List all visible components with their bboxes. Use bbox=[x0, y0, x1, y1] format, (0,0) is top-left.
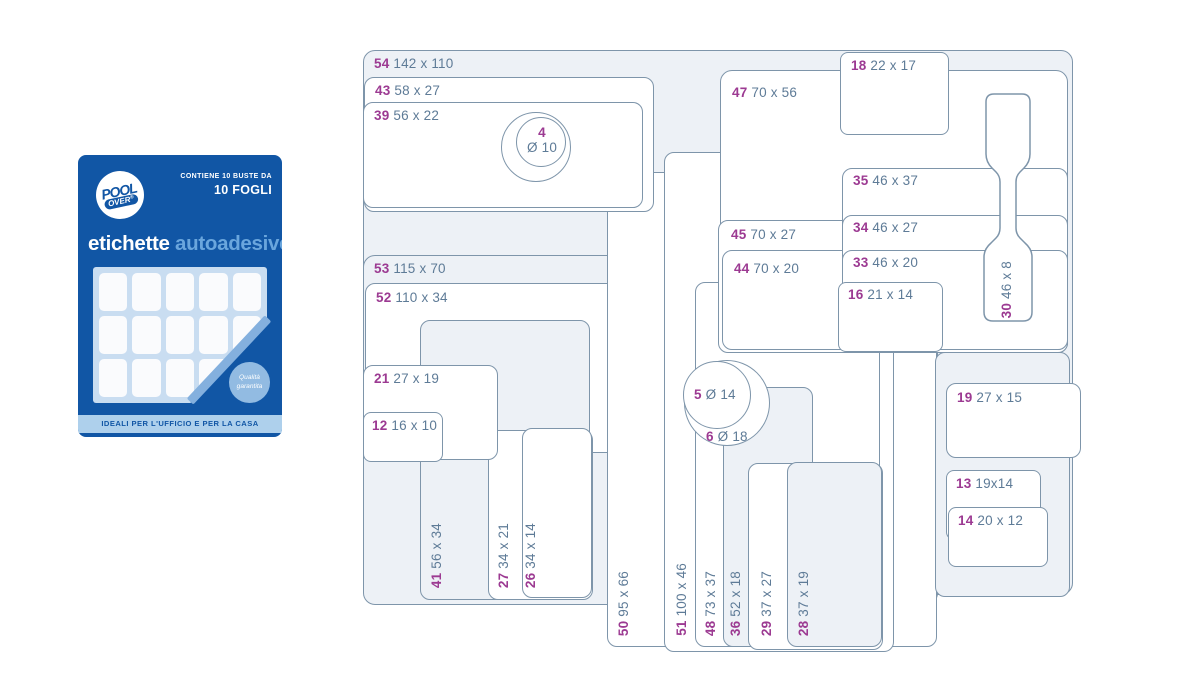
label-47-number: 47 bbox=[732, 85, 747, 100]
label-30-dimensions: 46 x 8 bbox=[999, 261, 1014, 299]
label-26-dimensions: 34 x 14 bbox=[523, 523, 538, 569]
label-30-label: 30 46 x 8 bbox=[1000, 261, 1015, 318]
label-41-label: 41 56 x 34 bbox=[430, 523, 445, 588]
label-36-number: 36 bbox=[728, 621, 743, 636]
label-16-dimensions: 21 x 14 bbox=[867, 287, 913, 302]
label-43-label: 43 58 x 27 bbox=[375, 84, 440, 99]
label-18-number: 18 bbox=[851, 58, 866, 73]
label-13-dimensions: 19x14 bbox=[975, 476, 1013, 491]
label-44-number: 44 bbox=[734, 261, 749, 276]
label-51-dimensions: 100 x 46 bbox=[674, 563, 689, 616]
label-35-dimensions: 46 x 37 bbox=[872, 173, 918, 188]
label-18-dimensions: 22 x 17 bbox=[870, 58, 916, 73]
label-41-dimensions: 56 x 34 bbox=[429, 523, 444, 569]
label-14-number: 14 bbox=[958, 513, 973, 528]
label-48-label: 48 73 x 37 bbox=[704, 571, 719, 636]
label-47-dimensions: 70 x 56 bbox=[751, 85, 797, 100]
label-26-number: 26 bbox=[523, 573, 538, 588]
label-28-number: 28 bbox=[796, 621, 811, 636]
label-36-dimensions: 52 x 18 bbox=[728, 571, 743, 617]
label-35-label: 35 46 x 37 bbox=[853, 174, 918, 189]
label-44-dimensions: 70 x 20 bbox=[753, 261, 799, 276]
label-52-dimensions: 110 x 34 bbox=[395, 290, 447, 305]
label-size-diagram: 54 142 x 11053 115 x 7052 110 x 3450 95 … bbox=[0, 0, 1200, 700]
label-43-dimensions: 58 x 27 bbox=[394, 83, 440, 98]
label-39-label: 39 56 x 22 bbox=[374, 109, 439, 124]
label-19-number: 19 bbox=[957, 390, 972, 405]
label-4-label: 4Ø 10 bbox=[527, 126, 557, 156]
label-51-number: 51 bbox=[674, 621, 689, 636]
circle-6-label: 6 Ø 18 bbox=[706, 430, 748, 445]
label-27-number: 27 bbox=[496, 573, 511, 588]
page: POOL OVER® CONTIENE 10 BUSTE DA 10 FOGLI… bbox=[0, 0, 1200, 700]
label-52-number: 52 bbox=[376, 290, 391, 305]
label-47-label: 47 70 x 56 bbox=[732, 86, 797, 101]
label-39-number: 39 bbox=[374, 108, 389, 123]
label-53-number: 53 bbox=[374, 261, 389, 276]
label-27-label: 27 34 x 21 bbox=[497, 523, 512, 588]
label-13-label: 13 19x14 bbox=[956, 477, 1013, 492]
circle-5-number: 5 bbox=[694, 387, 702, 402]
label-50-dimensions: 95 x 66 bbox=[616, 571, 631, 617]
label-54-label: 54 142 x 110 bbox=[374, 57, 453, 72]
label-34-label: 34 46 x 27 bbox=[853, 221, 918, 236]
label-28-label: 28 37 x 19 bbox=[797, 571, 812, 636]
label-54-number: 54 bbox=[374, 56, 389, 71]
label-33-label: 33 46 x 20 bbox=[853, 256, 918, 271]
label-18-label: 18 22 x 17 bbox=[851, 59, 916, 74]
label-45-number: 45 bbox=[731, 227, 746, 242]
label-39-dimensions: 56 x 22 bbox=[393, 108, 439, 123]
label-30-number: 30 bbox=[999, 303, 1014, 318]
label-26-label: 26 34 x 14 bbox=[524, 523, 539, 588]
label-12-label: 12 16 x 10 bbox=[372, 419, 437, 434]
label-12-number: 12 bbox=[372, 418, 387, 433]
label-35-number: 35 bbox=[853, 173, 868, 188]
label-33-number: 33 bbox=[853, 255, 868, 270]
circle-5-label: 5 Ø 14 bbox=[694, 388, 736, 403]
label-19-label: 19 27 x 15 bbox=[957, 391, 1022, 406]
label-14-label: 14 20 x 12 bbox=[958, 514, 1023, 529]
label-44-label: 44 70 x 20 bbox=[734, 262, 799, 277]
label-52-label: 52 110 x 34 bbox=[376, 291, 448, 306]
circle-6-number: 6 bbox=[706, 429, 714, 444]
label-53-label: 53 115 x 70 bbox=[374, 262, 446, 277]
label-21-number: 21 bbox=[374, 371, 389, 386]
label-21-dimensions: 27 x 19 bbox=[393, 371, 439, 386]
label-45-label: 45 70 x 27 bbox=[731, 228, 796, 243]
label-43-number: 43 bbox=[375, 83, 390, 98]
label-33-dimensions: 46 x 20 bbox=[872, 255, 918, 270]
label-50-label: 50 95 x 66 bbox=[617, 571, 632, 636]
label-4-dimensions: Ø 10 bbox=[527, 141, 557, 156]
circle-5-dimensions: Ø 14 bbox=[706, 387, 736, 402]
label-45-dimensions: 70 x 27 bbox=[750, 227, 796, 242]
label-36-label: 36 52 x 18 bbox=[729, 571, 744, 636]
label-16-label: 16 21 x 14 bbox=[848, 288, 913, 303]
label-48-dimensions: 73 x 37 bbox=[703, 571, 718, 617]
label-29-label: 29 37 x 27 bbox=[760, 571, 775, 636]
label-13-number: 13 bbox=[956, 476, 971, 491]
label-54-dimensions: 142 x 110 bbox=[393, 56, 453, 71]
label-48-number: 48 bbox=[703, 621, 718, 636]
label-51-label: 51 100 x 46 bbox=[675, 563, 690, 636]
label-34-dimensions: 46 x 27 bbox=[872, 220, 918, 235]
label-4-number: 4 bbox=[527, 126, 557, 141]
label-28-dimensions: 37 x 19 bbox=[796, 571, 811, 617]
label-34-number: 34 bbox=[853, 220, 868, 235]
circle-6-dimensions: Ø 18 bbox=[718, 429, 748, 444]
label-29-dimensions: 37 x 27 bbox=[759, 571, 774, 617]
label-53-dimensions: 115 x 70 bbox=[393, 261, 445, 276]
label-50-number: 50 bbox=[616, 621, 631, 636]
label-41-number: 41 bbox=[429, 573, 444, 588]
label-27-dimensions: 34 x 21 bbox=[496, 523, 511, 569]
label-21-label: 21 27 x 19 bbox=[374, 372, 439, 387]
label-12-dimensions: 16 x 10 bbox=[391, 418, 437, 433]
label-29-number: 29 bbox=[759, 621, 774, 636]
label-16-number: 16 bbox=[848, 287, 863, 302]
label-14-dimensions: 20 x 12 bbox=[977, 513, 1023, 528]
label-19-dimensions: 27 x 15 bbox=[976, 390, 1022, 405]
